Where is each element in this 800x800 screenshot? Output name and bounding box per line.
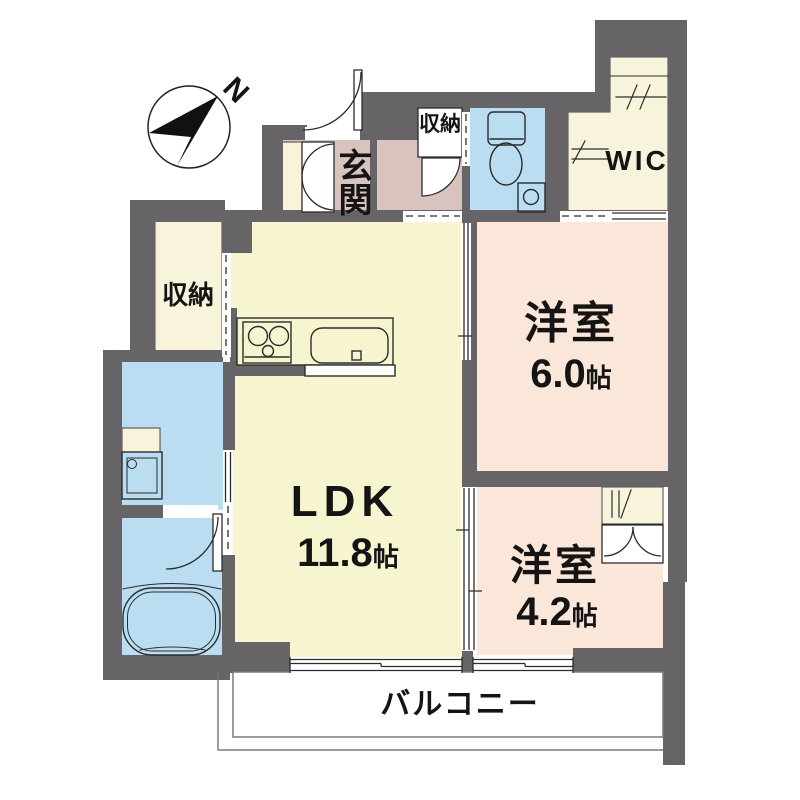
bedroom6-size-value: 6.0 [530,352,586,396]
wic-floor [568,57,668,212]
ldk-size-value: 11.8 [297,531,373,575]
wic-label: WIC [605,145,668,176]
compass: N [148,71,255,168]
wall-segment [360,108,418,140]
toilet-floor [468,108,545,214]
storage-label: 収納 [162,280,214,310]
bedroom4-size-unit: 帖 [572,601,598,631]
wall-segment [103,505,163,518]
floorplan-canvas: N 玄関 収納 WIC 収納 洋室 6.0帖 LDK 11.8帖 洋室 4.2帖… [0,0,800,800]
balcony-label: バルコニー [380,688,539,721]
wall-segment [462,471,687,487]
wall-segment [595,20,687,57]
ldk-size-unit: 帖 [373,542,399,572]
bathroom-opening [163,505,218,518]
wall-segment [573,648,663,673]
floorplan-svg: N 玄関 収納 WIC 収納 洋室 6.0帖 LDK 11.8帖 洋室 4.2帖… [0,0,800,800]
kitchen-counter [237,318,393,365]
hall-storage-label: 収納 [419,112,461,136]
ldk-bedroom6-door [461,223,471,360]
bedroom4-label: 洋室 [510,542,600,589]
washer-pan [122,428,160,452]
wall-segment [360,92,545,108]
wall-segment [223,642,290,673]
wall-segment [222,210,252,253]
ldk-floor [230,215,462,658]
wall-segment [545,108,568,212]
kitchen-counter-front [305,365,395,376]
wall-segment [663,582,685,765]
bedroom4-closet-floor [602,487,663,525]
wall-segment [668,57,687,582]
ldk-label: LDK [291,477,399,526]
entrance-label: 玄関 [333,148,371,216]
washroom-door [223,450,233,555]
wall-segment [262,125,283,210]
wall-segment [130,210,155,362]
entrance-door-swing [303,72,361,130]
wall-segment [103,655,230,680]
bedroom6-label: 洋室 [524,298,618,348]
bedroom6-size-unit: 帖 [586,363,612,393]
bedroom4-size-value: 4.2 [516,590,572,634]
wall-segment [462,650,473,673]
shoe-cabinet-doors [302,142,334,212]
wall-segment [370,140,377,212]
wall-segment [230,365,305,376]
